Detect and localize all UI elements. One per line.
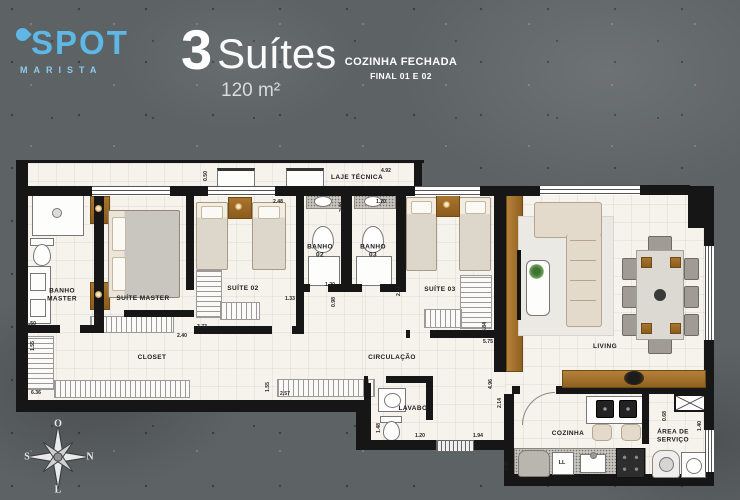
room-label-closet: CLOSET [138,354,167,362]
centerpiece [654,289,666,301]
placemat [641,323,652,334]
note-line-2: FINAL 01 E 02 [341,71,461,81]
double-bed [108,210,180,298]
single-bed [252,202,286,270]
dining-chair [622,286,637,308]
pillow [465,201,486,214]
window [705,246,714,340]
dimension-label: 1.48 [376,423,381,433]
dimension-label: 2.14 [497,398,502,408]
dining-chair [648,338,672,354]
dimension-label: 4.92 [381,168,391,173]
pillow [112,217,126,251]
structural-column [688,186,714,228]
window [540,185,640,195]
compass-west: O [54,419,62,430]
closet-shelving [54,380,190,398]
wall [292,326,304,334]
lamp-icon [95,291,102,298]
single-bed [459,197,491,271]
wall [16,325,60,333]
dimension-label: 0.98 [331,297,336,307]
cooktop-burner [619,400,637,418]
fruit-bowl-icon [624,371,644,385]
single-bed [406,197,437,271]
note-line-1: COZINHA FECHADA [341,56,461,68]
bar-stool [592,424,612,441]
shower-head-icon [52,208,62,218]
dining-chair [684,314,699,336]
sink [314,196,332,207]
dimension-label: 1.20 [376,199,386,204]
pillow [258,206,280,219]
title-number: 3 [181,27,212,73]
washer-door-icon [659,457,674,472]
room-label-laje-tecnica: LAJE TÉCNICA [331,174,383,182]
wall [704,228,714,246]
wardrobe [196,270,222,318]
placemat [641,257,652,268]
room-label-suite-02: SUÍTE 02 [227,285,258,293]
room-label-suite-03: SUÍTE 03 [424,286,455,294]
utility-shaft [674,394,706,412]
room-label-area-de-servico: ÁREA DE SERVIÇO [657,429,689,446]
dimension-label: 4.96 [488,379,493,389]
dimension-label: 1.55 [265,382,270,392]
room-label-suite-master: SUÍTE MASTER [116,295,169,303]
entry-door-mat [436,440,474,452]
bar-stool [621,424,641,441]
laundry-tank [681,452,706,478]
dining-chair [622,314,637,336]
wall [16,160,424,163]
wall [426,376,433,420]
toilet [33,244,51,266]
dimension-label: 1.50 [26,321,36,326]
room-label-lavabo: LAVABO [399,405,428,413]
logo-subtitle: MARISTA [20,65,134,75]
fixture-label-dishwasher: LL [559,460,566,465]
dining-table [636,250,684,340]
dimension-label: 2.48 [273,199,283,204]
wall [16,400,366,412]
window [208,186,275,196]
wall [186,188,194,290]
pillow [112,257,126,291]
placemat [670,323,681,334]
lamp-icon [235,203,242,210]
closet-shelving [277,379,375,397]
dimension-label: 1.33 [285,296,295,301]
room-label-banho-02: BANHO 02 [307,244,333,261]
window [705,430,714,472]
dimension-label: 5.75 [483,339,493,344]
wall [494,186,506,372]
sink [30,299,46,317]
sink [30,273,46,291]
faucet-icon [590,452,597,459]
sofa-cushion-lines [570,240,596,320]
floor-plan-page: SPOT MARISTA 3 Suítes 120 m² COZINHA FEC… [0,0,740,500]
dimension-label: 2.40 [177,333,187,338]
title-text: Suítes [217,36,336,73]
dimension-label: 3.40 [504,461,509,471]
room-label-cozinha: COZINHA [552,430,584,438]
dimension-label: 1.40 [697,421,702,431]
kitchen-sink [580,454,606,473]
stove [616,448,645,478]
logo-name: SPOT [31,26,129,59]
unit-area: 120 m² [221,80,280,102]
lamp-icon [443,201,450,208]
compass-rose: O N S L [20,418,96,496]
pillow [411,201,432,214]
dining-chair [684,258,699,280]
wall [364,383,371,442]
tv [517,250,521,320]
shower-box [356,256,392,286]
window [92,186,170,196]
wall [16,160,28,412]
plant-icon [529,264,544,279]
wall [640,185,690,195]
washing-machine [652,450,680,478]
wall [296,188,304,330]
toilet [383,421,400,441]
dimension-label: 3.51 [94,313,99,323]
dimension-label: 3.84 [482,322,487,332]
wall [304,284,310,292]
tank-basin [686,458,702,474]
refrigerator [518,450,550,477]
lamp-icon [95,205,102,212]
map-pin-icon [13,25,31,43]
sofa-section [534,202,602,238]
dimension-label: 2.57 [280,391,290,396]
dimension-label: 1.20 [325,282,335,287]
window [415,186,480,196]
wardrobe [424,309,462,328]
wall [364,376,368,383]
cooktop-burner [596,400,614,418]
dimension-label: 1.94 [473,433,483,438]
dining-chair [684,286,699,308]
wall [480,186,540,196]
dimension-label: 6.36 [31,390,41,395]
room-label-banho-master: BANHO MASTER [47,288,77,305]
dining-chair [622,258,637,280]
dimension-label: 3.73 [197,324,207,329]
dimension-label: 1.20 [415,433,425,438]
pillow [201,206,223,219]
dimension-label: 2.40 [339,202,344,212]
dimension-label: 1.55 [30,341,35,351]
wall [124,310,194,317]
room-label-living: LIVING [593,343,617,351]
room-label-circulacao: CIRCULAÇÃO [368,354,416,362]
logo: SPOT MARISTA [14,26,134,75]
page-title: 3 Suítes [181,27,336,73]
room-label-banho-03: BANHO 03 [360,244,386,261]
wardrobe [220,302,260,320]
wall [512,386,520,394]
dimension-label: 2.51 [396,286,401,296]
compass-south: S [24,452,30,463]
dimension-label: 0.68 [662,411,667,421]
plan-note: COZINHA FECHADA FINAL 01 E 02 [341,56,461,81]
single-bed [196,202,228,270]
wall [380,284,406,292]
wall [406,330,410,338]
wall [642,394,649,444]
compass-east: L [55,485,62,496]
wall [80,325,104,333]
wall [396,188,406,292]
dimension-label: 0.50 [203,171,208,181]
placemat [670,257,681,268]
compass-north: N [86,452,93,463]
